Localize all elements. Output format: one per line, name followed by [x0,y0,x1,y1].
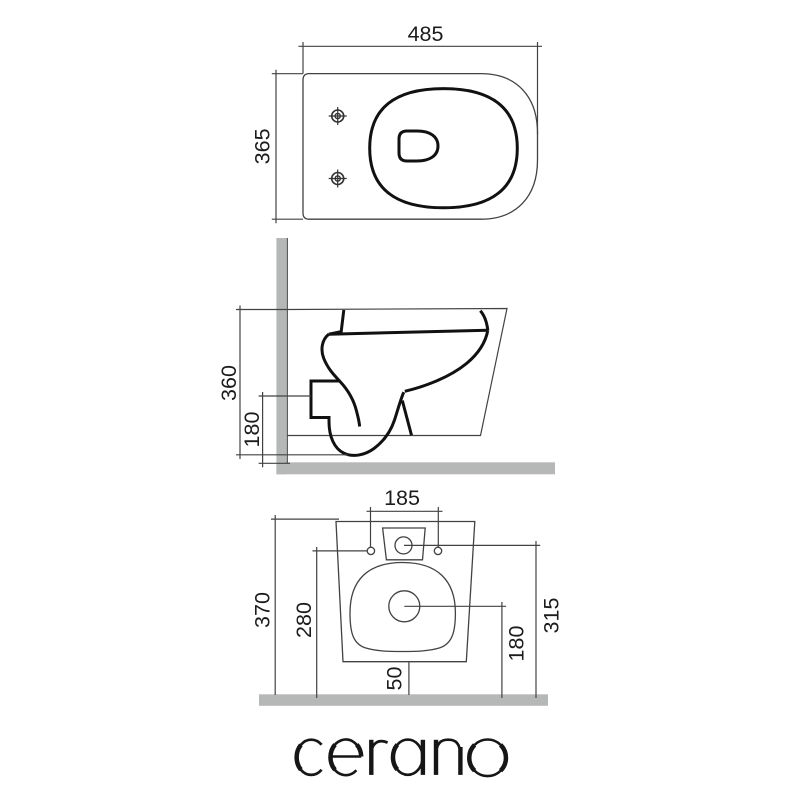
svg-text:370: 370 [250,592,274,628]
svg-text:360: 360 [217,365,241,401]
svg-text:180: 180 [505,626,529,662]
svg-text:365: 365 [251,128,275,164]
svg-text:50: 50 [383,667,407,691]
svg-text:180: 180 [240,412,264,448]
svg-text:485: 485 [408,22,444,46]
svg-text:280: 280 [292,602,316,638]
svg-text:185: 185 [384,486,420,510]
svg-text:315: 315 [540,598,564,634]
